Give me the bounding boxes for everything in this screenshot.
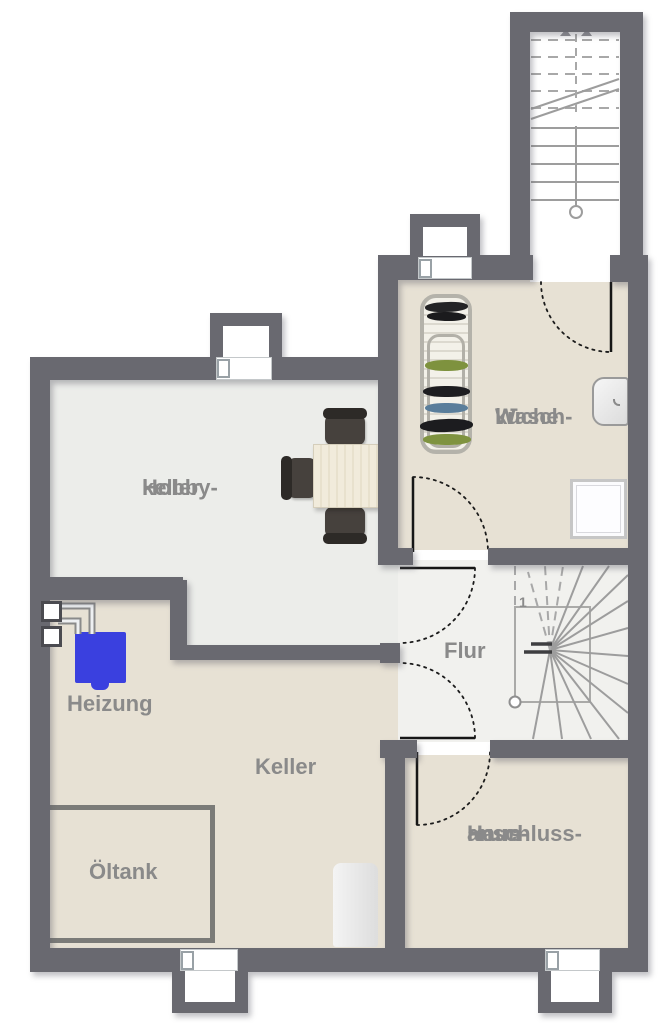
clothes-dark-3 [423, 386, 470, 397]
bump-wasch-r [467, 214, 480, 257]
window-cap [181, 951, 194, 970]
window-cap [419, 259, 432, 278]
boiler-icon [75, 632, 126, 683]
bump-botright-b [538, 1002, 612, 1013]
label-flur: Flur [444, 637, 486, 665]
drying-rack-icon [420, 294, 472, 454]
floor-stair-shaft [530, 20, 620, 282]
chimney-flue-2 [41, 626, 62, 647]
chimney-flue-1 [41, 601, 62, 622]
boiler-tab [91, 683, 109, 690]
window-cap [217, 359, 230, 378]
clothes-dark-2 [427, 312, 466, 322]
bump-botleft-b [172, 1002, 248, 1013]
wall-hobby-south-left [30, 577, 183, 600]
chair-left-backrest [281, 456, 292, 500]
label-winder-step-1: 1 [519, 594, 527, 610]
floor-hobbykeller-south [183, 565, 398, 647]
basement-floor-plan: Hobby-keller Wasch-küche Flur Heizung Ke… [0, 0, 660, 1023]
bump-topleft-r [269, 313, 282, 359]
bump-botright-l [538, 972, 551, 1013]
wall-shaft-right [620, 12, 643, 280]
wall-hausanschluss-left [385, 740, 405, 948]
bump-botleft-l [172, 972, 185, 1013]
floor-hausanschlussraum [405, 755, 628, 950]
window-hausanschlussraum [545, 949, 600, 971]
clothes-dark-4 [420, 418, 473, 433]
lightwell-botleft [185, 970, 235, 1002]
wall-shaft-left [510, 12, 530, 280]
washing-machine-door [576, 485, 621, 533]
faucet-icon [613, 399, 620, 406]
washing-machine-icon [570, 479, 627, 539]
bump-topleft-l [210, 313, 223, 359]
chair-left-icon [288, 458, 316, 498]
wall-hobby-top [30, 357, 398, 380]
wall-right-outer [628, 255, 648, 972]
sink-icon [592, 377, 629, 426]
window-cap [546, 951, 559, 970]
bump-botleft-r [235, 972, 248, 1013]
floor-flur [398, 560, 628, 742]
clothes-blue-1 [425, 403, 468, 413]
chair-bottom-backrest [323, 533, 367, 544]
wall-hobby-wasch-divider [378, 255, 398, 565]
clothes-green-1 [425, 360, 468, 371]
window-hobbykeller [216, 357, 272, 380]
lightwell-botright [551, 970, 599, 1002]
chair-top-backrest [323, 408, 367, 419]
label-keller: Keller [255, 753, 316, 781]
label-oeltank: Öltank [89, 858, 157, 886]
clothes-green-2 [423, 434, 471, 445]
bump-wasch-t [410, 214, 480, 227]
window-waschkueche [418, 257, 472, 279]
bump-botright-r [599, 972, 612, 1013]
lightwell-topleft [223, 326, 269, 358]
window-keller [180, 949, 238, 971]
chair-top-icon [325, 415, 365, 445]
bump-wasch-l [410, 214, 423, 257]
cabinet-icon [333, 863, 378, 947]
lightwell-wasch [423, 227, 467, 256]
label-heizung: Heizung [67, 690, 153, 718]
bump-topleft-t [210, 313, 282, 326]
table-icon [313, 444, 379, 508]
